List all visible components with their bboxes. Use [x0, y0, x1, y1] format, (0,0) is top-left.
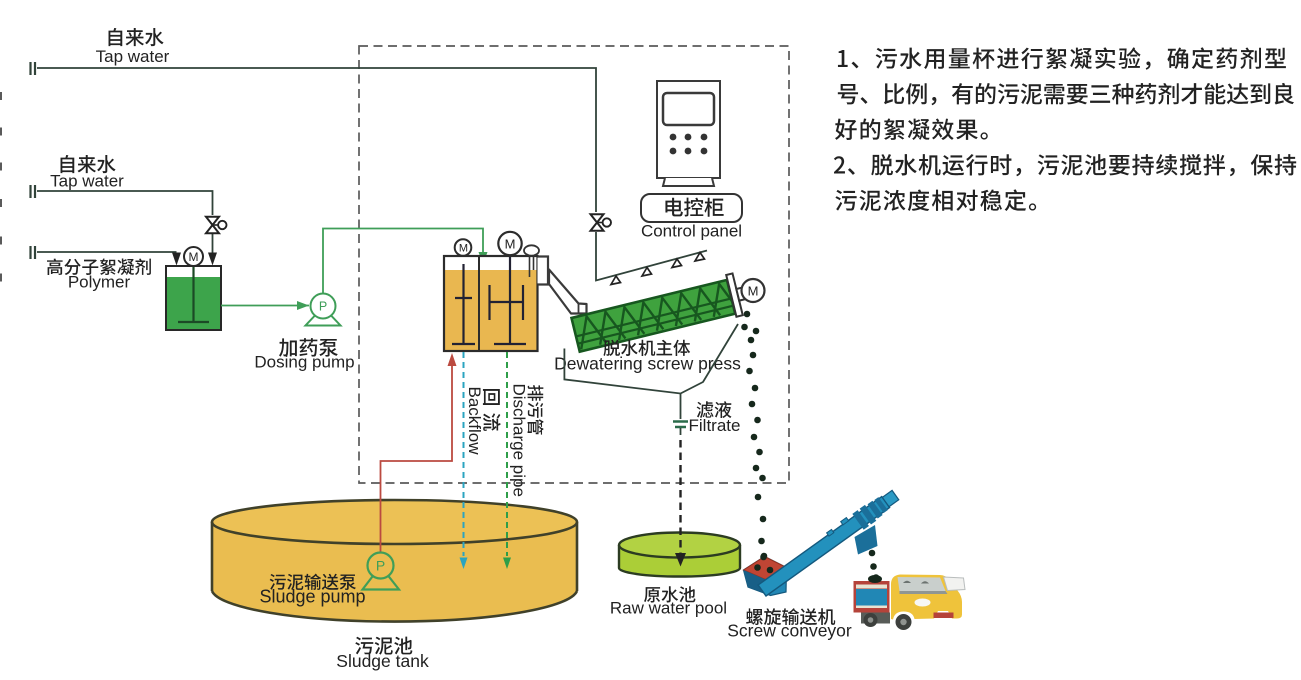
svg-text:Dewatering screw press: Dewatering screw press: [554, 354, 741, 374]
svg-text:Backflow: Backflow: [465, 387, 484, 456]
svg-text:P: P: [376, 558, 385, 574]
svg-text:Polymer: Polymer: [68, 273, 131, 292]
svg-text:P: P: [319, 300, 327, 314]
svg-text:M: M: [505, 237, 516, 252]
svg-text:Screw conveyor: Screw conveyor: [727, 621, 852, 641]
svg-text:M: M: [748, 284, 759, 299]
svg-text:M: M: [459, 243, 468, 255]
svg-text:Filtrate: Filtrate: [689, 416, 741, 435]
svg-text:Sludge tank: Sludge tank: [336, 651, 429, 671]
svg-text:Control panel: Control panel: [641, 222, 742, 241]
svg-text:M: M: [189, 250, 199, 264]
svg-text:Dosing pump: Dosing pump: [254, 353, 354, 372]
svg-text:Tap water: Tap water: [96, 47, 170, 66]
svg-text:Raw water pool: Raw water pool: [610, 599, 727, 618]
svg-text:Tap water: Tap water: [50, 172, 124, 191]
svg-text:Discharge pipe: Discharge pipe: [510, 384, 529, 497]
svg-text:Sludge pump: Sludge pump: [259, 587, 365, 607]
